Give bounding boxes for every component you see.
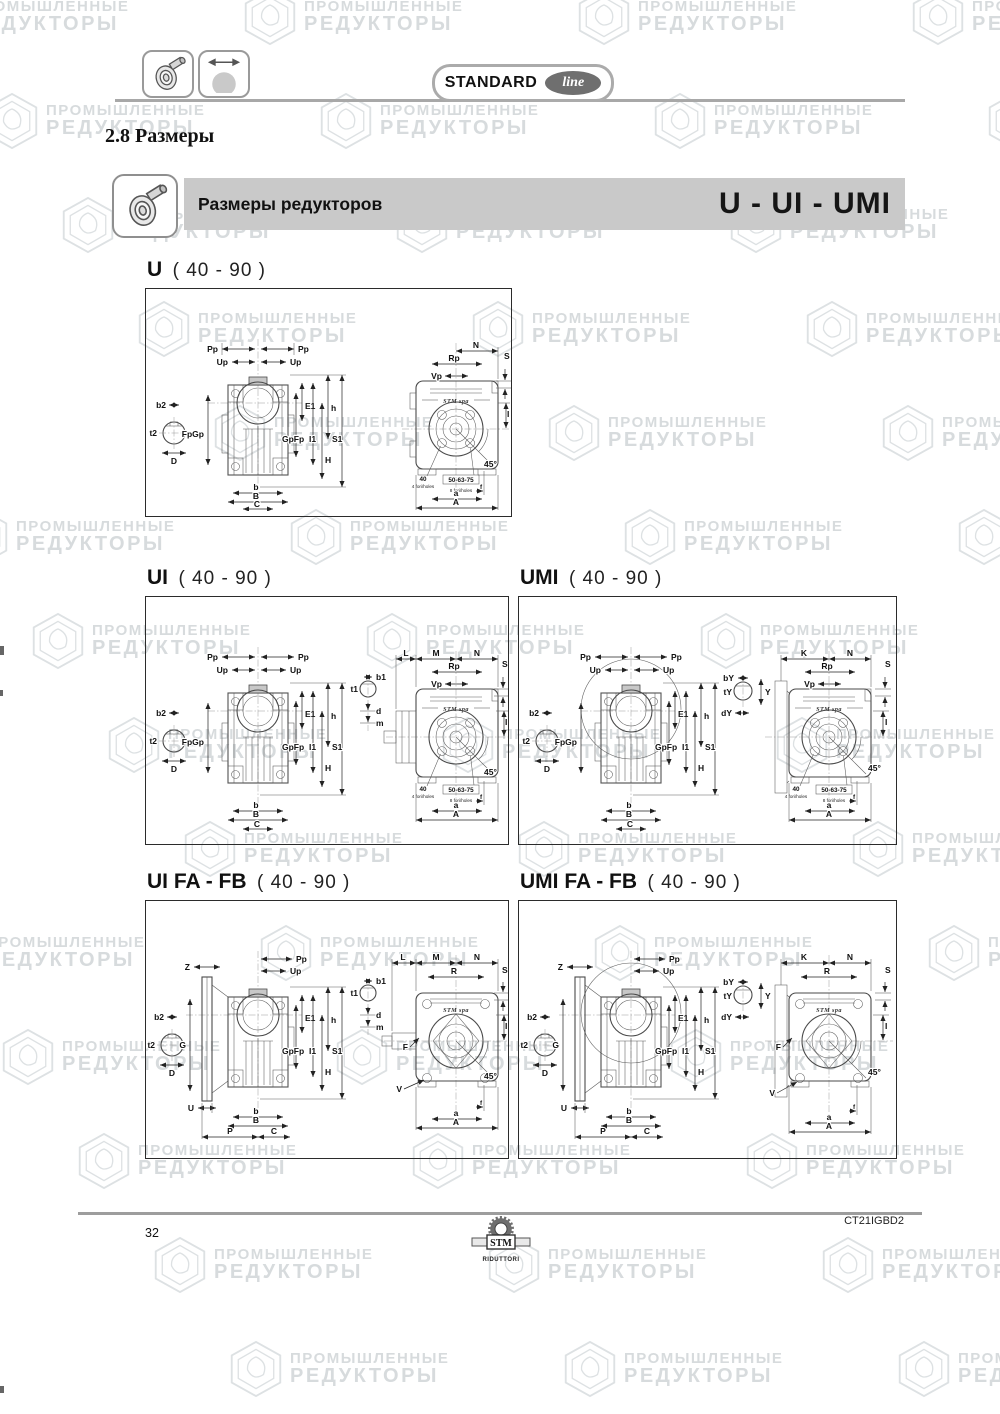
- dim-label-b2: b2: [156, 708, 166, 718]
- dim-label-h: h: [331, 1015, 336, 1025]
- scan-speck: [0, 690, 3, 696]
- dim-label-Up: Up: [590, 665, 601, 675]
- dim-label-Pp: Pp: [671, 652, 682, 662]
- dim-label-t2: t2: [149, 428, 157, 438]
- dim-label-B: B: [626, 809, 632, 819]
- catalog-page: ПРОМЫШЛЕННЫЕРЕДУКТОРЫПРОМЫШЛЕННЫЕРЕДУКТО…: [0, 0, 1000, 1414]
- dim-label-t2: t2: [520, 1040, 528, 1050]
- line-label: line: [562, 75, 584, 91]
- dim-label-A: A: [453, 1117, 459, 1127]
- dim-label-E1: E1: [678, 1013, 689, 1023]
- dim-label-b2: b2: [527, 1012, 537, 1022]
- section-title: 2.8 Размеры: [105, 125, 214, 148]
- dim-label-H: H: [325, 455, 331, 465]
- dim-label-dY: dY: [721, 708, 732, 718]
- dim-label-Up: Up: [663, 665, 674, 675]
- dim-label-D: D: [171, 764, 177, 774]
- panel-ui-fafb-box: b2 t2 D Pp Up Z G U E: [145, 900, 509, 1159]
- dim-label-I1: I1: [682, 742, 689, 752]
- ui-fafb-front-view: b2 t2 D Pp Up Z G U E: [147, 951, 346, 1139]
- dim-label-f: f: [480, 1100, 483, 1107]
- ui-diagram: b2 t2 D Pp Pp Up Up FpGp: [146, 597, 508, 839]
- dim-label-V: V: [769, 1088, 775, 1098]
- umi-fafb-front-view: b2 t2 D Pp Up Z G U E: [520, 951, 719, 1139]
- dim-label-A: A: [826, 809, 832, 819]
- dim-label-GpFp: GpFp: [655, 1046, 677, 1056]
- line-oval: line: [545, 71, 601, 95]
- dim-label-Rp: Rp: [448, 661, 459, 671]
- dim-label-G: G: [552, 1040, 559, 1050]
- panel-model: UMI: [520, 566, 559, 589]
- dim-label-Up: Up: [217, 357, 228, 367]
- dim-label-45deg: 45°: [484, 1071, 497, 1081]
- dim-label-C: C: [627, 819, 633, 829]
- panel-u: U ( 40 - 90 ): [145, 258, 512, 517]
- dim-label-Z: Z: [558, 962, 563, 972]
- dim-label-Pp: Pp: [298, 344, 309, 354]
- dim-label-Up: Up: [290, 357, 301, 367]
- dim-label-f: f: [853, 794, 856, 801]
- dim-label-Up: Up: [290, 966, 301, 976]
- holes-5063-label: 50-63-75: [448, 477, 474, 484]
- panel-range: ( 40 - 90 ): [569, 568, 662, 589]
- dim-label-S: S: [502, 659, 508, 669]
- dim-label-S1: S1: [332, 742, 343, 752]
- stm-logo-text: STM: [490, 1238, 512, 1249]
- dim-label-S: S: [502, 965, 508, 975]
- dim-label-A: A: [453, 497, 459, 507]
- page-number: 32: [145, 1226, 159, 1240]
- dim-label-t1: t1: [350, 988, 358, 998]
- banner-title: Размеры редукторов: [198, 194, 382, 215]
- dim-label-GpFp: GpFp: [282, 742, 304, 752]
- panel-umi: UMI ( 40 - 90 ): [518, 566, 897, 845]
- dim-label-E1: E1: [305, 1013, 316, 1023]
- dim-label-N: N: [473, 340, 479, 350]
- dim-label-t1: t1: [350, 684, 358, 694]
- dim-label-Pp: Pp: [207, 344, 218, 354]
- stm-logo-image: STM RIDUTTORI: [468, 1214, 534, 1266]
- dim-label-G: G: [179, 1040, 186, 1050]
- dim-label-B: B: [253, 809, 259, 819]
- panel-ui: UI ( 40 - 90 ): [145, 566, 509, 845]
- standard-line-badge: STANDARD line: [432, 64, 614, 102]
- panel-ui-fafb-title: UI FA - FB ( 40 - 90 ): [147, 870, 509, 894]
- holes-40-label: 40: [419, 476, 427, 483]
- panel-ui-box: b2 t2 D Pp Pp Up Up FpGp: [145, 596, 509, 845]
- dim-label-t2: t2: [147, 1040, 155, 1050]
- panel-umi-box: b2 t2 D Pp Pp Up Up FpGp: [518, 596, 897, 845]
- panel-range: ( 40 - 90 ): [178, 568, 271, 589]
- dim-label-I: I: [885, 1021, 887, 1031]
- dim-label-FpGp: FpGp: [182, 429, 204, 439]
- dim-label-FpGp: FpGp: [182, 737, 204, 747]
- dim-label-V: V: [396, 1084, 402, 1094]
- stm-spa-label: STM spa: [443, 1007, 469, 1014]
- dim-label-f: f: [480, 484, 483, 491]
- dimension-icon: [198, 50, 250, 98]
- umi-side-view: STM spa K N Rp Vp: [765, 648, 893, 822]
- dim-label-U: U: [561, 1103, 567, 1113]
- dim-label-D: D: [542, 1068, 548, 1078]
- panel-umi-title: UMI ( 40 - 90 ): [520, 566, 897, 590]
- stm-logo: STM RIDUTTORI: [468, 1214, 534, 1271]
- dim-label-bY: bY: [723, 673, 734, 683]
- banner-models: U - UI - UMI: [719, 187, 891, 221]
- panel-umi-fafb-box: b2 t2 D Pp Up Z G U E: [518, 900, 897, 1159]
- dim-label-H: H: [698, 763, 704, 773]
- umi-motor-shaft-section: bY tY dY Y: [721, 673, 771, 718]
- ui-fafb-side-view: STM spa L M N: [382, 952, 508, 1130]
- panel-model: U: [147, 258, 162, 281]
- holes-5063-label: 50-63-75: [448, 787, 474, 794]
- dim-label-D: D: [171, 456, 177, 466]
- dim-label-45deg: 45°: [484, 459, 497, 469]
- dim-label-d: d: [376, 1010, 381, 1020]
- dim-label-E1: E1: [305, 709, 316, 719]
- dim-label-N: N: [474, 648, 480, 658]
- dim-label-f: f: [480, 794, 483, 801]
- dim-label-F: F: [403, 1042, 408, 1052]
- dim-label-S1: S1: [332, 1046, 343, 1056]
- dimension-icon-image: [204, 55, 244, 93]
- dim-label-Y: Y: [765, 687, 771, 697]
- panel-u-box: b2 t2 D Pp Pp Up Up FpGp: [145, 288, 512, 517]
- dim-label-S: S: [885, 659, 891, 669]
- dim-label-A: A: [826, 1121, 832, 1131]
- dim-label-Pp: Pp: [669, 954, 680, 964]
- dim-label-D: D: [169, 1068, 175, 1078]
- stm-spa-label: STM spa: [816, 1007, 842, 1014]
- dim-label-P: P: [227, 1126, 233, 1136]
- holes-40-sub-label: 4 fori/holes: [412, 484, 435, 489]
- ui-input-shaft-section: b1 t1 d m: [350, 672, 386, 731]
- u-front-view: b2 t2 D Pp Pp Up Up FpGp: [149, 339, 346, 509]
- dim-label-A: A: [453, 809, 459, 819]
- dim-label-H: H: [325, 763, 331, 773]
- dim-label-tY: tY: [724, 687, 733, 697]
- stm-logo-subtext: RIDUTTORI: [482, 1257, 519, 1263]
- dim-label-N: N: [847, 952, 853, 962]
- dim-label-C: C: [644, 1126, 650, 1136]
- dim-label-E1: E1: [678, 709, 689, 719]
- dim-label-b1: b1: [376, 672, 386, 682]
- dim-label-K: K: [801, 648, 808, 658]
- dim-label-GpFp: GpFp: [282, 434, 304, 444]
- banner-bar: Размеры редукторов U - UI - UMI: [184, 178, 905, 230]
- scan-speck: [0, 1386, 4, 1393]
- panel-model: UI FA - FB: [147, 870, 247, 893]
- panel-range: ( 40 - 90 ): [257, 872, 350, 893]
- dim-label-h: h: [331, 403, 336, 413]
- dim-label-M: M: [432, 648, 439, 658]
- holes-40-label: 40: [419, 786, 427, 793]
- dim-label-I: I: [505, 1021, 507, 1031]
- panel-ui-title: UI ( 40 - 90 ): [147, 566, 509, 590]
- dim-label-Vp: Vp: [431, 371, 442, 381]
- panel-umi-fafb: UMI FA - FB ( 40 - 90 ): [518, 870, 897, 1159]
- panel-ui-fafb: UI FA - FB ( 40 - 90 ): [145, 870, 509, 1159]
- dim-label-U: U: [188, 1103, 194, 1113]
- umi-diagram: b2 t2 D Pp Pp Up Up FpGp: [519, 597, 896, 839]
- dim-label-h: h: [704, 711, 709, 721]
- dim-label-t2: t2: [149, 736, 157, 746]
- dim-label-GpFp: GpFp: [655, 742, 677, 752]
- page-content: STANDARD line 2.8 Размеры: [0, 0, 1000, 1414]
- dim-label-B: B: [626, 1115, 632, 1125]
- scan-speck: [0, 646, 4, 655]
- dim-label-h: h: [704, 1015, 709, 1025]
- dim-label-I1: I1: [309, 434, 316, 444]
- dim-label-I: I: [507, 409, 509, 419]
- worm-gearbox-icon-image: [148, 55, 188, 93]
- dim-label-L: L: [400, 952, 405, 962]
- dim-label-FpGp: FpGp: [555, 737, 577, 747]
- holes-40-sub-label: 4 fori/holes: [412, 794, 435, 799]
- dim-label-45deg: 45°: [868, 1067, 881, 1077]
- dim-label-GpFp: GpFp: [282, 1046, 304, 1056]
- dim-label-I1: I1: [309, 1046, 316, 1056]
- dim-label-S: S: [885, 965, 891, 975]
- dim-label-N: N: [474, 952, 480, 962]
- dim-label-Pp: Pp: [296, 954, 307, 964]
- dim-label-M: M: [432, 952, 439, 962]
- dim-label-Up: Up: [217, 665, 228, 675]
- ui-fafb-diagram: b2 t2 D Pp Up Z G U E: [146, 901, 508, 1153]
- dim-label-S: S: [504, 351, 510, 361]
- dim-label-Pp: Pp: [580, 652, 591, 662]
- u-diagram: b2 t2 D Pp Pp Up Up FpGp: [146, 289, 511, 511]
- dim-label-S1: S1: [705, 1046, 716, 1056]
- holes-40-label: 40: [792, 786, 800, 793]
- dim-label-45deg: 45°: [484, 767, 497, 777]
- dim-label-b1: b1: [376, 976, 386, 986]
- dim-label-Y: Y: [765, 991, 771, 1001]
- standard-label: STANDARD: [445, 74, 538, 92]
- dim-label-P: P: [600, 1126, 606, 1136]
- banner: Размеры редукторов U - UI - UMI: [112, 172, 905, 234]
- holes-40-sub-label: 4 fori/holes: [785, 794, 808, 799]
- dim-label-Pp: Pp: [298, 652, 309, 662]
- umi-fafb-motor-shaft-section: bY tY dY Y: [721, 977, 771, 1022]
- dim-label-dY: dY: [721, 1012, 732, 1022]
- dim-label-D: D: [544, 764, 550, 774]
- umi-front-view: b2 t2 D Pp Pp Up Up FpGp: [522, 647, 719, 829]
- worm-gearbox-icon: [142, 50, 194, 98]
- dim-label-Pp: Pp: [207, 652, 218, 662]
- dim-label-L: L: [403, 648, 408, 658]
- dim-label-b2: b2: [529, 708, 539, 718]
- holes-5063-label: 50-63-75: [821, 787, 847, 794]
- dim-label-F: F: [776, 1042, 781, 1052]
- dim-label-H: H: [698, 1067, 704, 1077]
- dim-label-R: R: [824, 966, 830, 976]
- dim-label-K: K: [801, 952, 808, 962]
- panel-u-title: U ( 40 - 90 ): [147, 258, 512, 282]
- umi-fafb-diagram: b2 t2 D Pp Up Z G U E: [519, 901, 896, 1153]
- dim-label-bY: bY: [723, 977, 734, 987]
- dim-label-tY: tY: [724, 991, 733, 1001]
- dim-label-R: R: [451, 966, 457, 976]
- dim-label-N: N: [847, 648, 853, 658]
- dim-label-b2: b2: [154, 1012, 164, 1022]
- dim-label-I1: I1: [309, 742, 316, 752]
- dim-label-C: C: [254, 819, 260, 829]
- panel-range: ( 40 - 90 ): [173, 260, 266, 281]
- dim-label-H: H: [325, 1067, 331, 1077]
- dim-label-Rp: Rp: [448, 353, 459, 363]
- dim-label-I: I: [885, 717, 887, 727]
- dim-label-Vp: Vp: [804, 679, 815, 689]
- dim-label-Rp: Rp: [821, 661, 832, 671]
- dim-label-I: I: [505, 717, 507, 727]
- dim-label-B: B: [253, 1115, 259, 1125]
- doc-code: CT21IGBD2: [844, 1215, 904, 1227]
- dim-label-45deg: 45°: [868, 763, 881, 773]
- panel-range: ( 40 - 90 ): [648, 872, 741, 893]
- u-side-view: STM spa N Rp Vp: [402, 340, 511, 510]
- panel-umi-fafb-title: UMI FA - FB ( 40 - 90 ): [520, 870, 897, 894]
- dim-label-C: C: [271, 1126, 277, 1136]
- ui-front-view: b2 t2 D Pp Pp Up Up FpGp: [149, 647, 346, 829]
- dim-label-S1: S1: [705, 742, 716, 752]
- dim-label-S1: S1: [332, 434, 343, 444]
- dim-label-C: C: [254, 499, 260, 509]
- ui-fafb-input-shaft-section: b1 t1 d m: [350, 976, 386, 1035]
- dim-label-m: m: [376, 718, 384, 728]
- dim-label-d: d: [376, 706, 381, 716]
- dim-label-E1: E1: [305, 401, 316, 411]
- dim-label-Up: Up: [663, 966, 674, 976]
- umi-fafb-side-view: STM spa K N R S: [765, 952, 893, 1134]
- dim-label-Up: Up: [290, 665, 301, 675]
- dim-label-Vp: Vp: [431, 679, 442, 689]
- dim-label-I1: I1: [682, 1046, 689, 1056]
- dim-label-m: m: [376, 1022, 384, 1032]
- ui-side-view: STM spa L M N: [384, 648, 508, 822]
- panel-model: UMI FA - FB: [520, 870, 637, 893]
- dim-label-Z: Z: [185, 962, 190, 972]
- banner-gearbox-icon: [112, 174, 178, 238]
- dim-label-h: h: [331, 711, 336, 721]
- banner-gearbox-icon-image: [120, 182, 170, 230]
- dim-label-t2: t2: [522, 736, 530, 746]
- dim-label-b2: b2: [156, 400, 166, 410]
- dim-label-f: f: [853, 1104, 856, 1111]
- panel-model: UI: [147, 566, 168, 589]
